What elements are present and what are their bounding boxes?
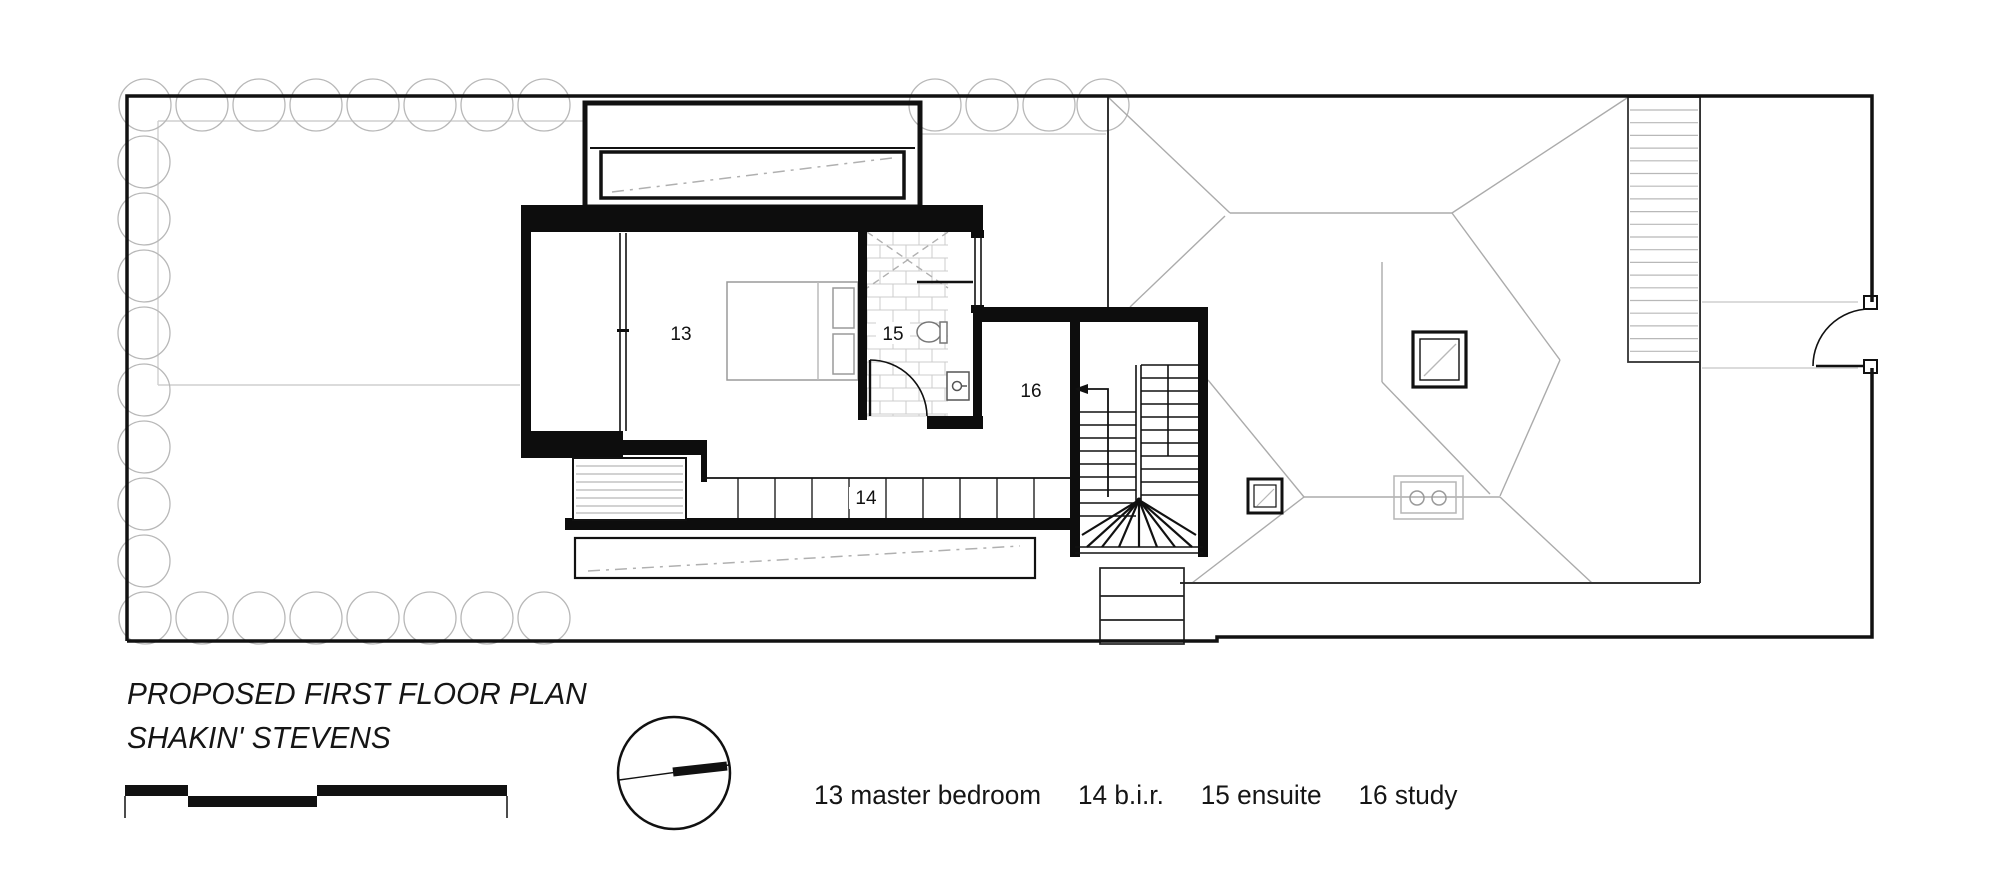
floor-plan-sheet: 13 14 15 16 PROPOSED FIRST FLOOR PLAN SH…: [0, 0, 2000, 894]
side-gate: [1813, 296, 1877, 373]
room-label-study: 16: [1020, 381, 1041, 402]
staircase: [1074, 365, 1203, 553]
stair-winders: [1082, 500, 1196, 547]
external-steps: [1100, 568, 1184, 644]
garden-edges: [158, 121, 1858, 385]
legend-item-master-bedroom: 13 master bedroom: [814, 780, 1041, 811]
awning-roof: [575, 538, 1035, 578]
skylight-small: [1248, 479, 1282, 513]
legend-item-ensuite: 15 ensuite: [1201, 780, 1322, 811]
louvre-roof: [573, 458, 686, 520]
legend-item-study: 16 study: [1358, 780, 1457, 811]
north-arrow-icon: [618, 717, 730, 829]
study-window: [975, 236, 981, 307]
room-legend: 13 master bedroom 14 b.i.r. 15 ensuite 1…: [814, 780, 1457, 811]
project-name: SHAKIN' STEVENS: [127, 716, 587, 760]
front-bay-roof: [585, 103, 920, 207]
toilet: [917, 322, 947, 343]
stair-direction-line: [1088, 389, 1108, 497]
deck-battens: [1628, 97, 1700, 362]
legend-item-bir: 14 b.i.r.: [1078, 780, 1164, 811]
drawing-title: PROPOSED FIRST FLOOR PLAN: [127, 672, 587, 716]
room-label-master-bedroom: 13: [670, 324, 691, 345]
built-in-robe: [701, 478, 1070, 518]
stair-treads-right: [1141, 365, 1198, 495]
shower: [867, 232, 948, 288]
bed: [727, 282, 858, 380]
skylight-large: [1413, 332, 1466, 387]
room-label-ensuite: 15: [882, 324, 903, 345]
title-block: PROPOSED FIRST FLOOR PLAN SHAKIN' STEVEN…: [127, 672, 587, 760]
existing-roof: [1108, 97, 1627, 583]
vanity-basin: [947, 372, 969, 400]
existing-house-outline: [1108, 97, 1700, 583]
room-label-bir: 14: [855, 488, 877, 509]
scale-bar: [125, 785, 507, 818]
